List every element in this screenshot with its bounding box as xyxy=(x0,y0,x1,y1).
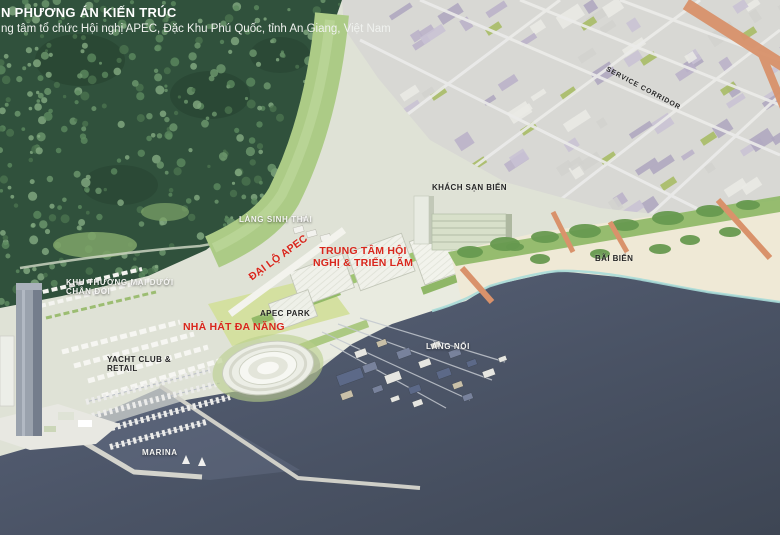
label-lang-noi: LÀNG NỔI xyxy=(426,343,470,352)
label-nha-hat-da-nang: NHÀ HÁT ĐA NĂNG xyxy=(183,322,285,334)
label-trung-tam-line1: TRUNG TÂM HỘI xyxy=(302,246,424,258)
label-khu-thuong-mai: KHU THƯƠNG MẠI DƯỚI CHÂN ĐỒI xyxy=(66,279,174,297)
label-yacht-club-line2: RETAIL xyxy=(107,365,171,374)
label-apec-park: APEC PARK xyxy=(260,310,310,319)
masterplan-rendering: N PHƯƠNG ÁN KIẾN TRÚC ng tâm tổ chức Hội… xyxy=(0,0,780,535)
label-marina: MARINA xyxy=(142,449,178,458)
header: N PHƯƠNG ÁN KIẾN TRÚC ng tâm tổ chức Hội… xyxy=(1,5,391,35)
label-trung-tam-hoi-nghi: TRUNG TÂM HỘI NGHỊ & TRIỂN LÃM xyxy=(302,246,424,269)
label-yacht-club-retail: YACHT CLUB & RETAIL xyxy=(107,356,171,374)
label-khach-san-bien: KHÁCH SẠN BIỂN xyxy=(432,184,507,193)
label-lang-sinh-thai: LÀNG SINH THÁI xyxy=(239,216,312,225)
label-khu-thuong-mai-line2: CHÂN ĐỒI xyxy=(66,288,174,297)
page-subtitle: ng tâm tổ chức Hội nghị APEC, Đặc Khu Ph… xyxy=(1,23,391,35)
label-bai-bien: BÃI BIỂN xyxy=(595,255,633,264)
page-title: N PHƯƠNG ÁN KIẾN TRÚC xyxy=(1,5,391,20)
label-trung-tam-line2: NGHỊ & TRIỂN LÃM xyxy=(302,258,424,270)
